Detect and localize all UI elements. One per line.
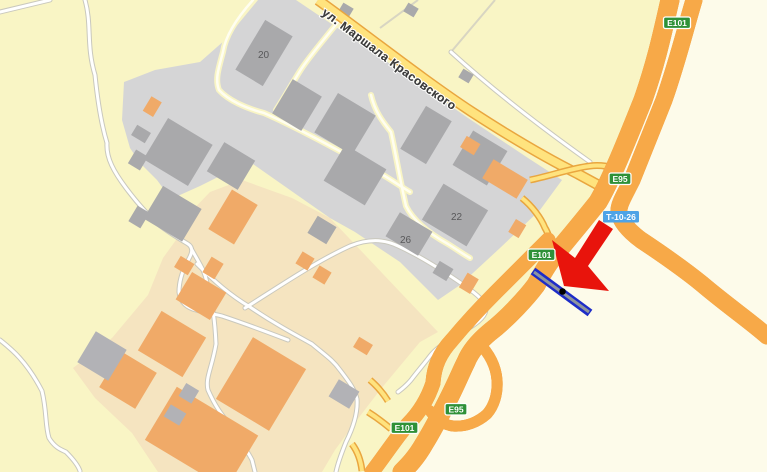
- svg-text:E95: E95: [612, 174, 627, 184]
- svg-text:E101: E101: [395, 423, 415, 433]
- svg-text:E101: E101: [667, 18, 687, 28]
- svg-text:E95: E95: [448, 405, 463, 415]
- svg-text:20: 20: [258, 50, 270, 61]
- svg-text:E101: E101: [532, 250, 552, 260]
- svg-text:Т-10-26: Т-10-26: [606, 212, 636, 222]
- svg-text:22: 22: [451, 212, 463, 223]
- svg-text:26: 26: [400, 235, 412, 246]
